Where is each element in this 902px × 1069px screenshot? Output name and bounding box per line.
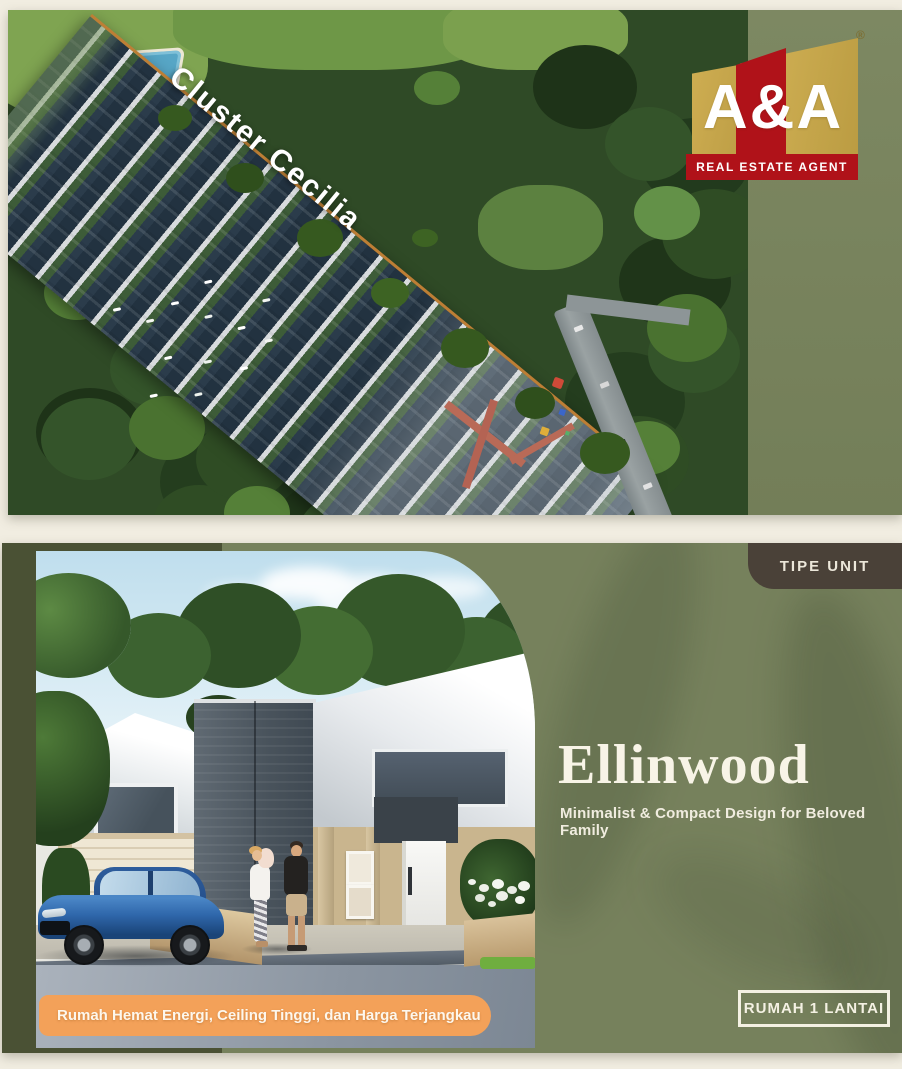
car-grille — [40, 921, 70, 935]
man-leg — [298, 916, 305, 946]
woman-head — [252, 850, 262, 861]
grass-patch — [443, 10, 628, 70]
unit-name-title: Ellinwood — [558, 733, 902, 797]
registered-trademark-icon: ® — [856, 28, 865, 42]
aerial-photo: Cluster Cecilia — [8, 10, 748, 515]
cars-on-road — [574, 325, 584, 333]
man-shoes — [287, 945, 307, 951]
unit-type-button[interactable]: RUMAH 1 LANTAI — [738, 990, 890, 1027]
man-leg — [288, 916, 295, 946]
woman-torso — [250, 864, 270, 900]
wall-art-frame — [346, 885, 374, 919]
grass-strip — [480, 957, 535, 969]
playground-equipment — [552, 377, 565, 390]
logo-brand-text: A&A — [678, 64, 868, 152]
man-shorts — [286, 894, 307, 916]
flyer-page: { "colors": { "cream_bg": "#f1ede1", "ol… — [0, 0, 902, 1069]
aerial-slide[interactable]: Cluster Cecilia A&A REAL ESTATE AGENT ® — [8, 10, 902, 515]
grass-patch-2 — [478, 185, 603, 270]
man-torso — [284, 856, 308, 896]
unit-subtitle: Minimalist & Compact Design for Beloved … — [560, 805, 902, 839]
entry-recess — [374, 797, 458, 843]
door-handle — [408, 867, 412, 895]
family-group — [244, 844, 316, 954]
car-rear-wheel — [170, 925, 210, 965]
clouds — [261, 567, 356, 599]
blue-car — [36, 859, 226, 965]
wall-art-frame — [346, 851, 374, 885]
white-flowers — [468, 879, 476, 885]
stone-pillar — [318, 827, 334, 941]
car-front-wheel — [64, 925, 104, 965]
woman-legs — [254, 896, 267, 942]
tipe-unit-badge: TIPE UNIT — [748, 543, 902, 589]
feature-banner: Rumah Hemat Energi, Ceiling Tinggi, dan … — [39, 995, 491, 1036]
unit-type-slide[interactable]: TIPE UNIT Ellinwood Minimalist & Compact… — [2, 543, 902, 1053]
woman-feet — [256, 941, 268, 947]
house-render-photo — [36, 551, 535, 1048]
unit-title-block: Ellinwood Minimalist & Compact Design fo… — [558, 733, 902, 839]
logo-tagline-ribbon: REAL ESTATE AGENT — [686, 154, 858, 180]
background-trees — [36, 573, 131, 678]
trees-on-strip — [158, 105, 192, 131]
brand-logo: A&A REAL ESTATE AGENT ® — [678, 28, 868, 180]
